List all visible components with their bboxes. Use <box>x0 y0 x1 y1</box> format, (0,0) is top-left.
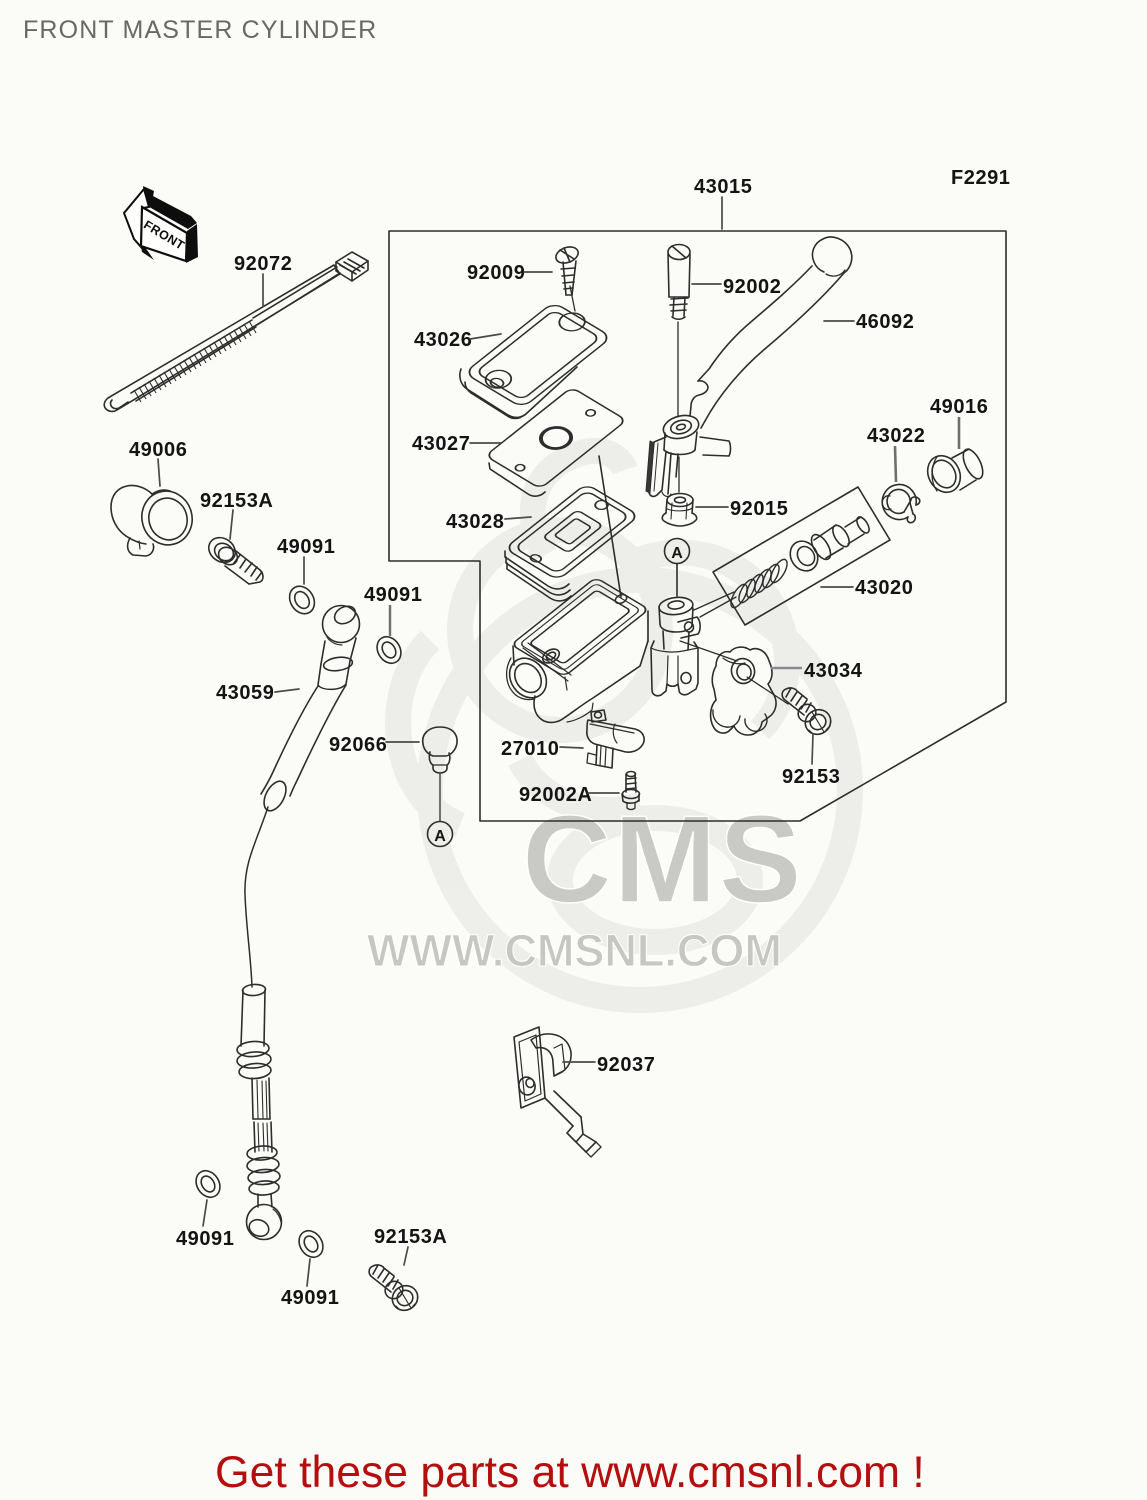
svg-text:43027: 43027 <box>412 433 470 455</box>
svg-text:43020: 43020 <box>855 577 913 599</box>
svg-text:43028: 43028 <box>446 511 504 533</box>
svg-text:92153A: 92153A <box>374 1226 447 1248</box>
svg-text:92002A: 92002A <box>519 784 592 806</box>
svg-text:49091: 49091 <box>277 536 335 558</box>
svg-text:92153: 92153 <box>782 766 840 788</box>
svg-text:92037: 92037 <box>597 1054 655 1076</box>
svg-text:A: A <box>434 828 446 845</box>
svg-text:92002: 92002 <box>723 276 781 298</box>
svg-text:92153A: 92153A <box>200 490 273 512</box>
svg-text:92072: 92072 <box>234 253 292 275</box>
svg-text:43034: 43034 <box>804 660 863 682</box>
svg-text:43022: 43022 <box>867 425 925 447</box>
svg-text:Get these parts at www.cmsnl.c: Get these parts at www.cmsnl.com ! <box>215 1448 925 1497</box>
svg-text:FRONT MASTER CYLINDER: FRONT MASTER CYLINDER <box>23 16 377 44</box>
svg-text:F2291: F2291 <box>951 167 1010 189</box>
svg-text:49016: 49016 <box>930 396 988 418</box>
svg-text:92066: 92066 <box>329 734 387 756</box>
svg-text:92009: 92009 <box>467 262 525 284</box>
svg-text:43015: 43015 <box>694 176 752 198</box>
svg-text:49006: 49006 <box>129 439 187 461</box>
svg-text:A: A <box>671 545 683 562</box>
svg-text:92015: 92015 <box>730 498 788 520</box>
svg-text:49091: 49091 <box>364 584 422 606</box>
svg-text:CMS: CMS <box>522 791 804 929</box>
svg-text:27010: 27010 <box>501 738 559 760</box>
svg-text:WWW.CMSNL.COM: WWW.CMSNL.COM <box>367 925 782 976</box>
svg-text:49091: 49091 <box>281 1287 339 1309</box>
svg-text:46092: 46092 <box>856 311 914 333</box>
svg-text:49091: 49091 <box>176 1228 234 1250</box>
svg-text:43026: 43026 <box>414 329 472 351</box>
svg-text:43059: 43059 <box>216 682 274 704</box>
